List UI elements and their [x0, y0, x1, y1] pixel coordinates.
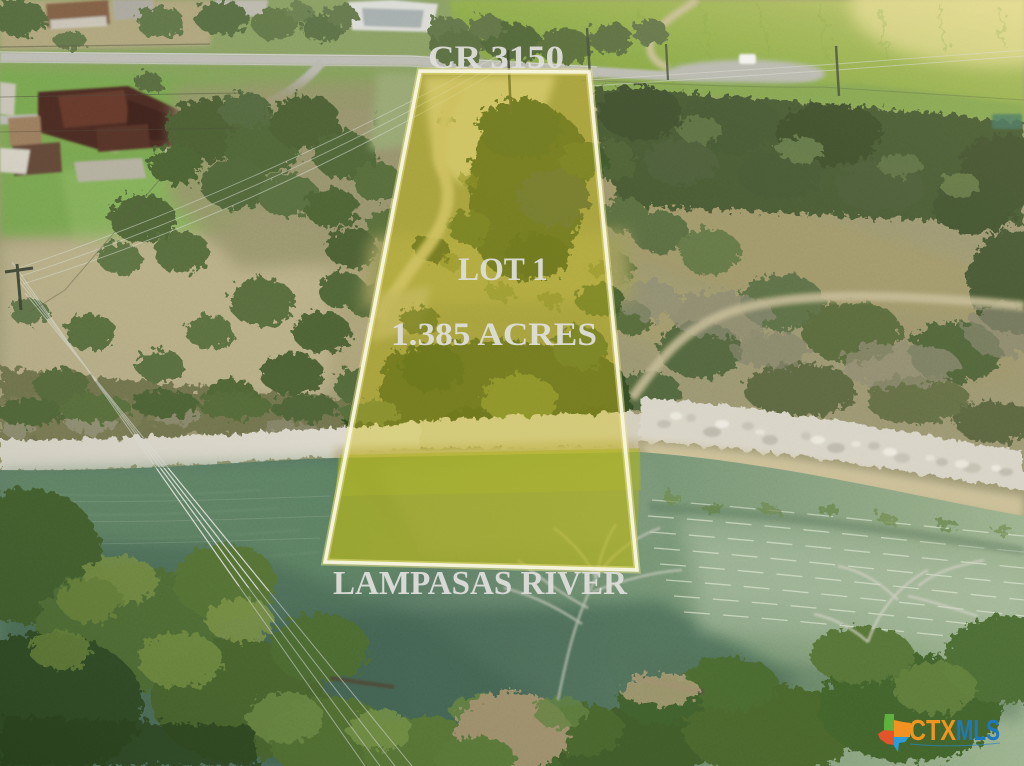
svg-text:MLS: MLS [956, 715, 1000, 747]
svg-text:CR 3150: CR 3150 [428, 40, 564, 76]
svg-text:1.385 ACRES: 1.385 ACRES [391, 317, 597, 353]
svg-text:LAMPASAS RIVER: LAMPASAS RIVER [333, 565, 627, 602]
svg-text:CTX: CTX [909, 715, 957, 747]
svg-text:LOT 1: LOT 1 [458, 252, 548, 288]
